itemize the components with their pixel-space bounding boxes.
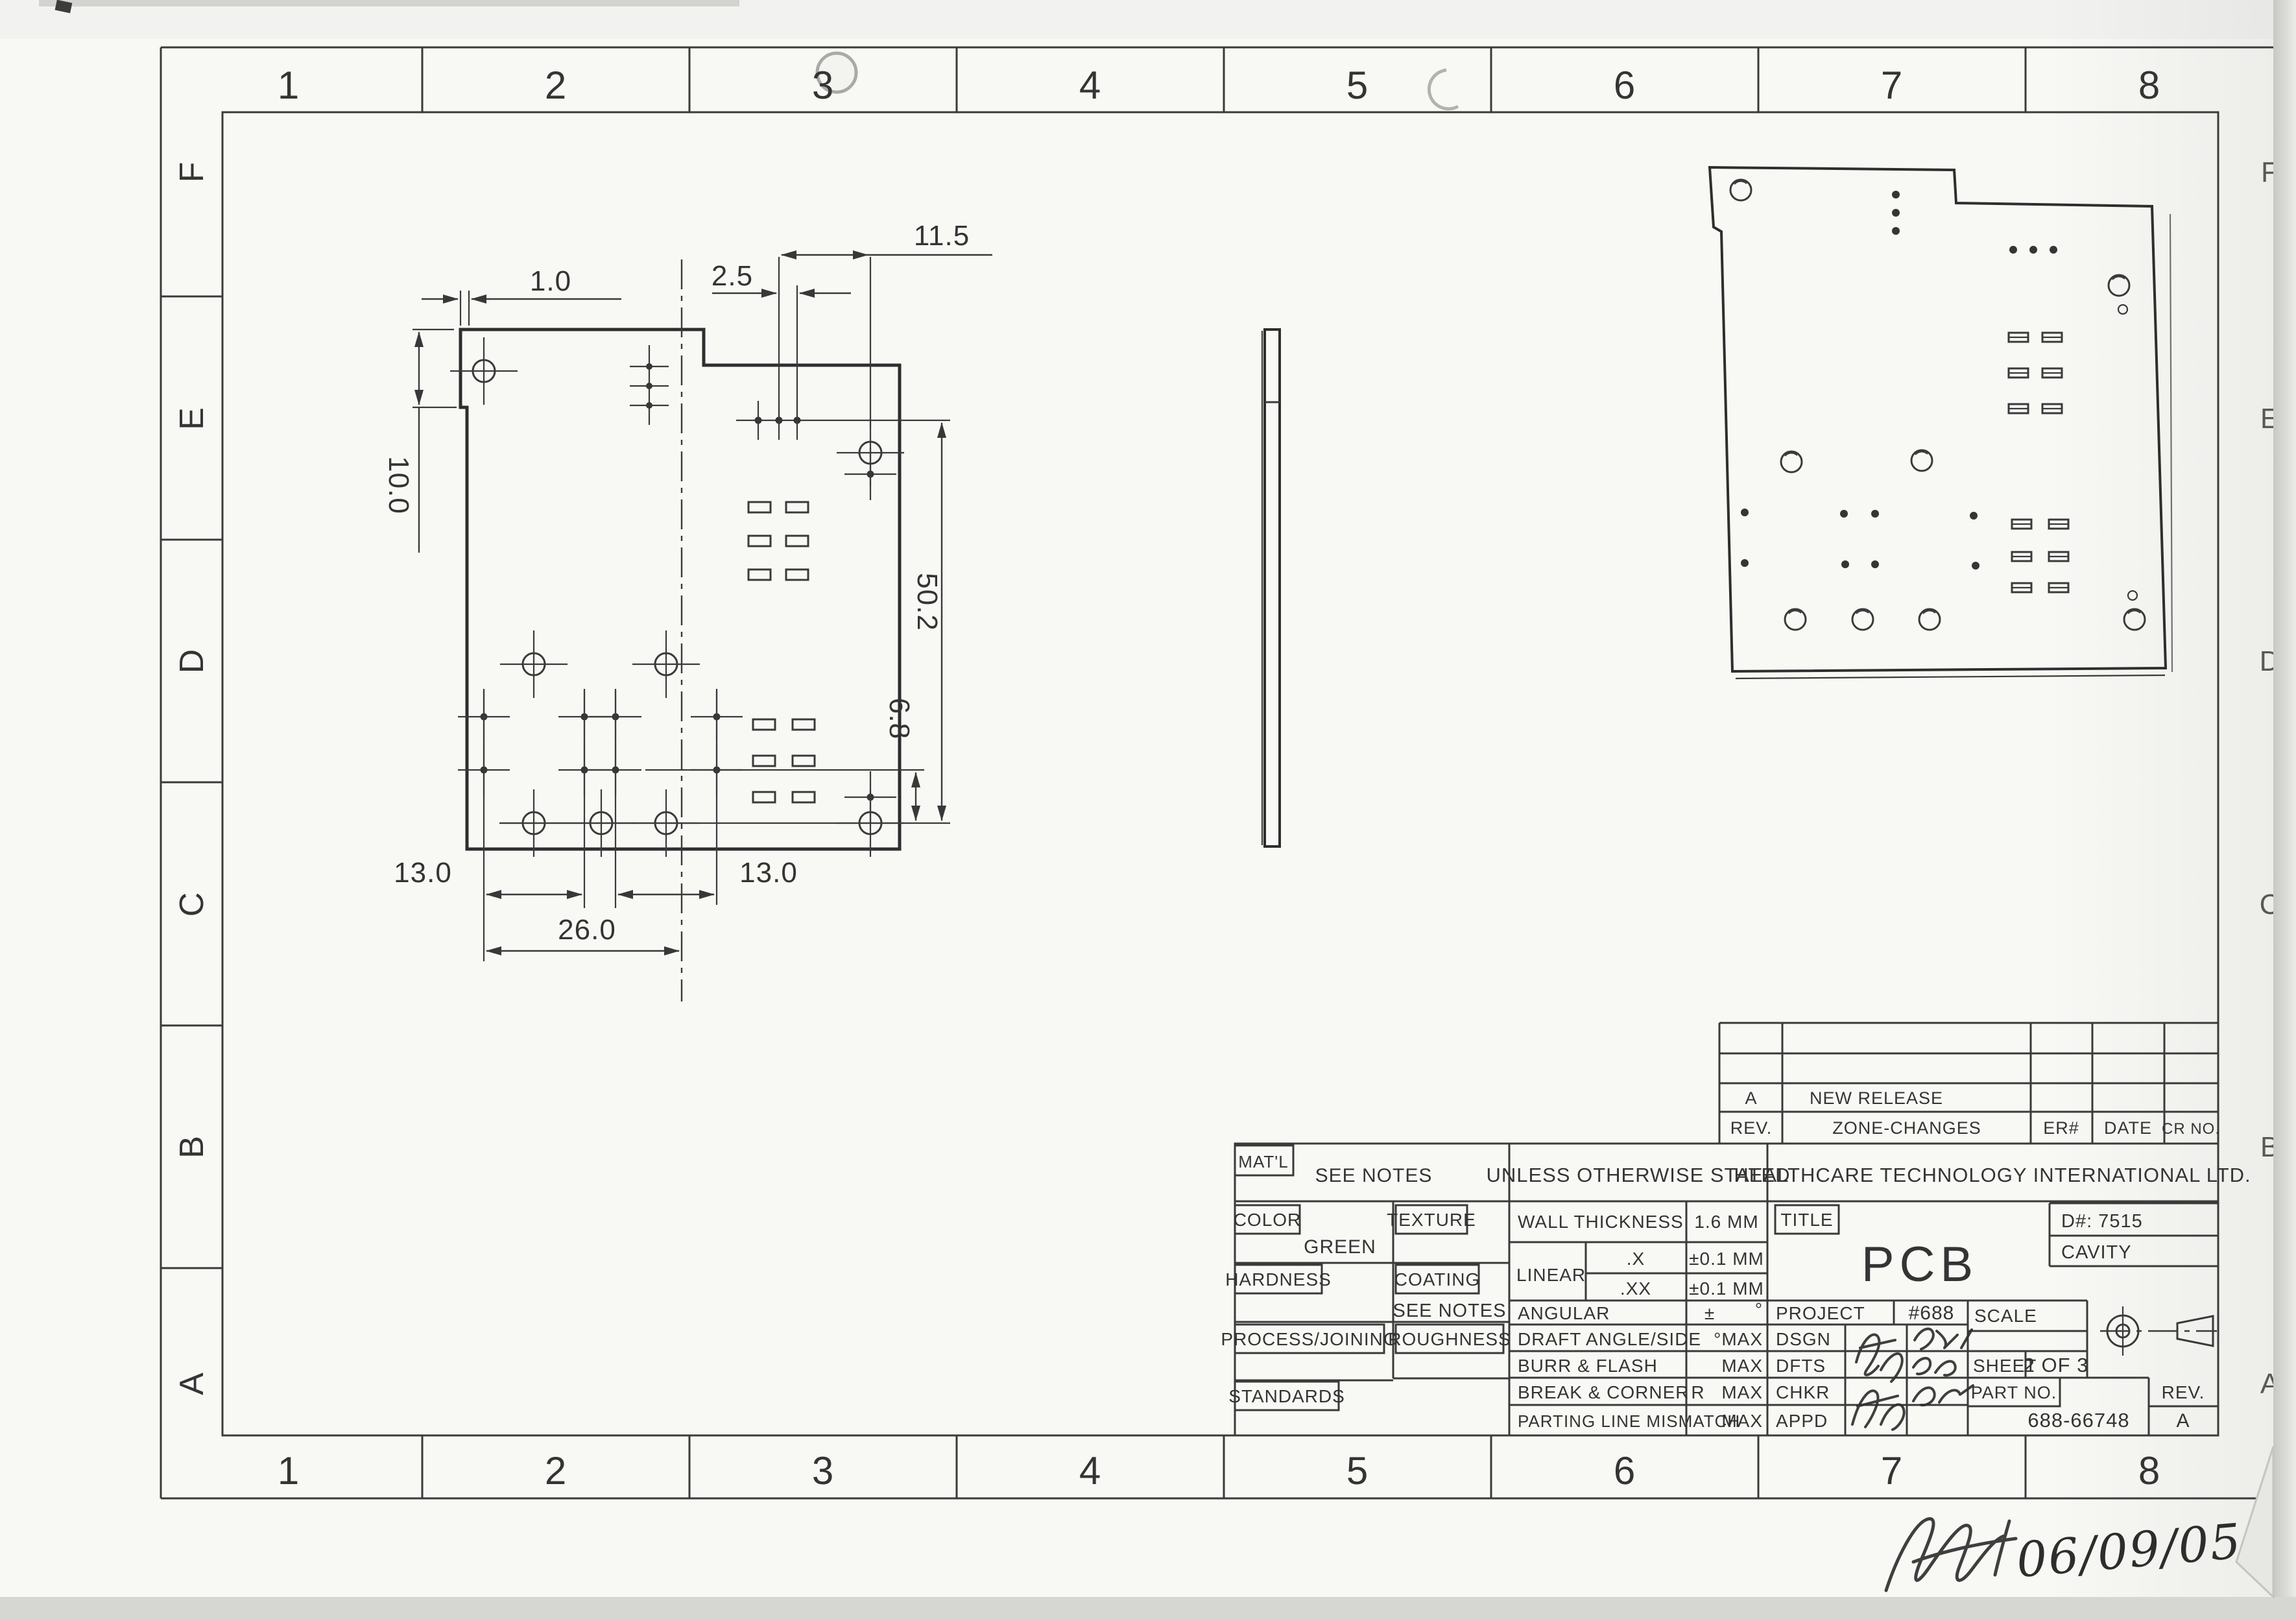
angular-label: ANGULAR	[1518, 1303, 1610, 1323]
wall-thickness-value: 1.6 MM	[1694, 1212, 1758, 1232]
zone-label: F	[173, 162, 211, 183]
scan-edge-top	[39, 0, 739, 6]
rev-col-header: DATE	[2104, 1118, 2152, 1138]
zone-label: C	[173, 892, 211, 917]
dim-text: 13.0	[394, 857, 452, 889]
coating-value: SEE NOTES	[1393, 1301, 1507, 1321]
linear-x-label: .X	[1627, 1249, 1645, 1269]
rev-value: A	[2176, 1410, 2190, 1432]
zone-label: 5	[1346, 64, 1369, 107]
dim-text: 26.0	[558, 914, 616, 946]
project-label: PROJECT	[1776, 1303, 1865, 1323]
angular-pm: ±	[1704, 1303, 1715, 1323]
zone-label: 1	[278, 64, 300, 107]
roughness-label: ROUGHNESS	[1388, 1329, 1511, 1349]
zone-label: 4	[1079, 64, 1101, 107]
zone-label: A	[173, 1372, 211, 1395]
standards-label: STANDARDS	[1228, 1386, 1345, 1406]
rev-label: REV.	[2162, 1382, 2205, 1402]
linear-label: LINEAR	[1516, 1265, 1586, 1285]
part-no-value: 688-66748	[2027, 1409, 2129, 1432]
break-corner-r: R	[1691, 1382, 1704, 1402]
zone-label: 6	[1614, 64, 1636, 107]
scanned-engineering-drawing: 1 2 3 4 5 6 7 8 1 2 3 4 5 6 7 8 F E D C …	[0, 0, 2296, 1619]
zone-label: 2	[545, 1449, 567, 1493]
rev-entry-letter: A	[1745, 1088, 1757, 1108]
title-label: TITLE	[1780, 1210, 1833, 1230]
matl-label: MAT'L	[1238, 1152, 1288, 1171]
zone-label: E	[173, 407, 211, 430]
dim-text: 13.0	[739, 857, 798, 889]
chkr-label: CHKR	[1776, 1382, 1830, 1402]
dfts-label: DFTS	[1776, 1356, 1826, 1376]
draft-angle-value: °MAX	[1714, 1329, 1763, 1349]
parting-line-label: PARTING LINE MISMATCH	[1518, 1411, 1740, 1431]
cavity-label: CAVITY	[2061, 1242, 2132, 1263]
wall-thickness-label: WALL THICKNESS	[1518, 1212, 1684, 1232]
draft-angle-label: DRAFT ANGLE/SIDE	[1518, 1329, 1701, 1349]
rev-col-header: CR NO.	[2162, 1120, 2220, 1138]
part-no-label: PART NO.	[1971, 1383, 2057, 1402]
break-corner-value: MAX	[1721, 1382, 1763, 1402]
dsgn-label: DSGN	[1776, 1329, 1831, 1349]
drawing-title: PCB	[1861, 1237, 1978, 1292]
angular-deg: °	[1755, 1299, 1763, 1319]
zone-label: 8	[2138, 64, 2160, 107]
hardness-label: HARDNESS	[1225, 1269, 1332, 1289]
zone-label: D	[173, 649, 211, 674]
linear-x-tol: ±0.1 MM	[1689, 1249, 1764, 1269]
process-joining-label: PROCESS/JOINING	[1221, 1329, 1398, 1349]
paper	[0, 0, 2296, 1619]
zone-label: B	[173, 1135, 211, 1158]
break-corner-label: BREAK & CORNER	[1518, 1382, 1690, 1402]
zone-label: 7	[1881, 1449, 1903, 1493]
zone-label: 4	[1079, 1449, 1101, 1493]
zone-label: 1	[278, 1449, 300, 1493]
matl-value: SEE NOTES	[1315, 1165, 1433, 1186]
zone-label: 3	[812, 64, 834, 107]
d-number: D#: 7515	[2061, 1211, 2143, 1232]
zone-label: 8	[2138, 1449, 2160, 1493]
rev-entry-desc: NEW RELEASE	[1810, 1088, 1943, 1108]
scale-label: SCALE	[1974, 1306, 2037, 1326]
linear-xx-label: .XX	[1620, 1278, 1651, 1299]
linear-xx-tol: ±0.1 MM	[1689, 1278, 1764, 1299]
burr-flash-value: MAX	[1721, 1356, 1763, 1376]
parting-line-value: MAX	[1721, 1411, 1763, 1431]
zone-label: 3	[812, 1449, 834, 1493]
dim-text: 50.2	[911, 573, 943, 631]
drawing-canvas: 1 2 3 4 5 6 7 8 1 2 3 4 5 6 7 8 F E D C …	[0, 0, 2296, 1619]
rev-col-header: ZONE-CHANGES	[1832, 1118, 1981, 1138]
texture-label: TEXTURE	[1387, 1210, 1476, 1230]
burr-flash-label: BURR & FLASH	[1518, 1356, 1658, 1376]
color-label: COLOR	[1234, 1210, 1302, 1230]
zone-label: 6	[1614, 1449, 1636, 1493]
dim-text: 1.0	[530, 265, 571, 297]
dim-text: 2.5	[712, 260, 753, 292]
coating-label: COATING	[1394, 1269, 1480, 1289]
appd-label: APPD	[1776, 1411, 1828, 1431]
rev-col-header: REV.	[1730, 1118, 1773, 1138]
company-name: HEALTHCARE TECHNOLOGY INTERNATIONAL LTD.	[1734, 1164, 2251, 1186]
zone-label: 5	[1346, 1449, 1369, 1493]
project-value: #688	[1909, 1302, 1955, 1324]
rev-col-header: ER#	[2043, 1118, 2079, 1138]
sheet-value: 2 OF 3	[2024, 1354, 2089, 1376]
zone-label: 7	[1881, 64, 1903, 107]
color-value: GREEN	[1304, 1236, 1376, 1258]
zone-label: 2	[545, 64, 567, 107]
dim-text: 6.8	[883, 698, 915, 739]
dim-text: 11.5	[914, 220, 970, 252]
dim-text: 10.0	[383, 456, 414, 514]
